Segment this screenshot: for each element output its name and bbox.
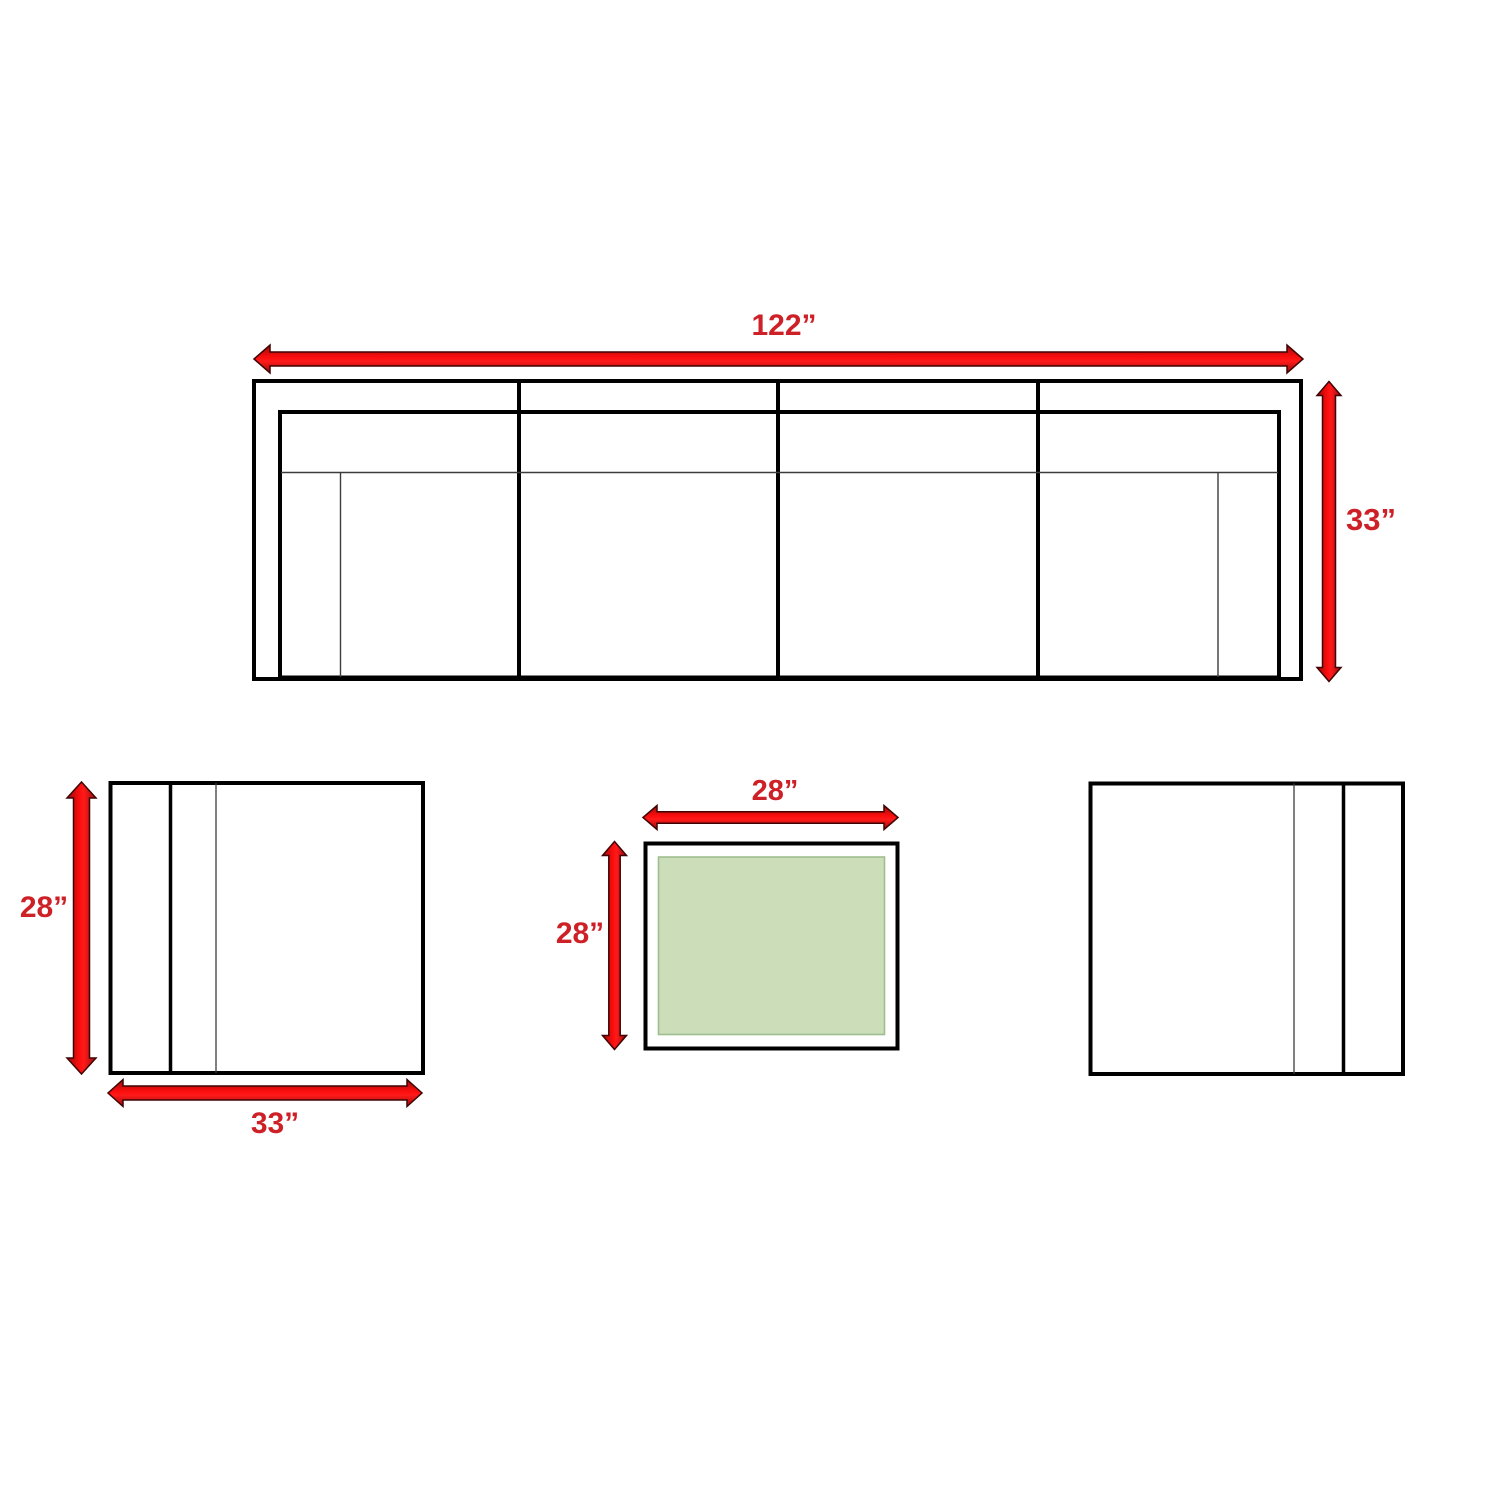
- svg-text:28”: 28”: [556, 917, 604, 950]
- svg-text:33”: 33”: [1346, 502, 1396, 537]
- svg-text:33”: 33”: [251, 1107, 299, 1140]
- svg-text:28”: 28”: [752, 775, 799, 807]
- svg-text:28”: 28”: [20, 891, 68, 924]
- svg-text:122”: 122”: [751, 309, 816, 342]
